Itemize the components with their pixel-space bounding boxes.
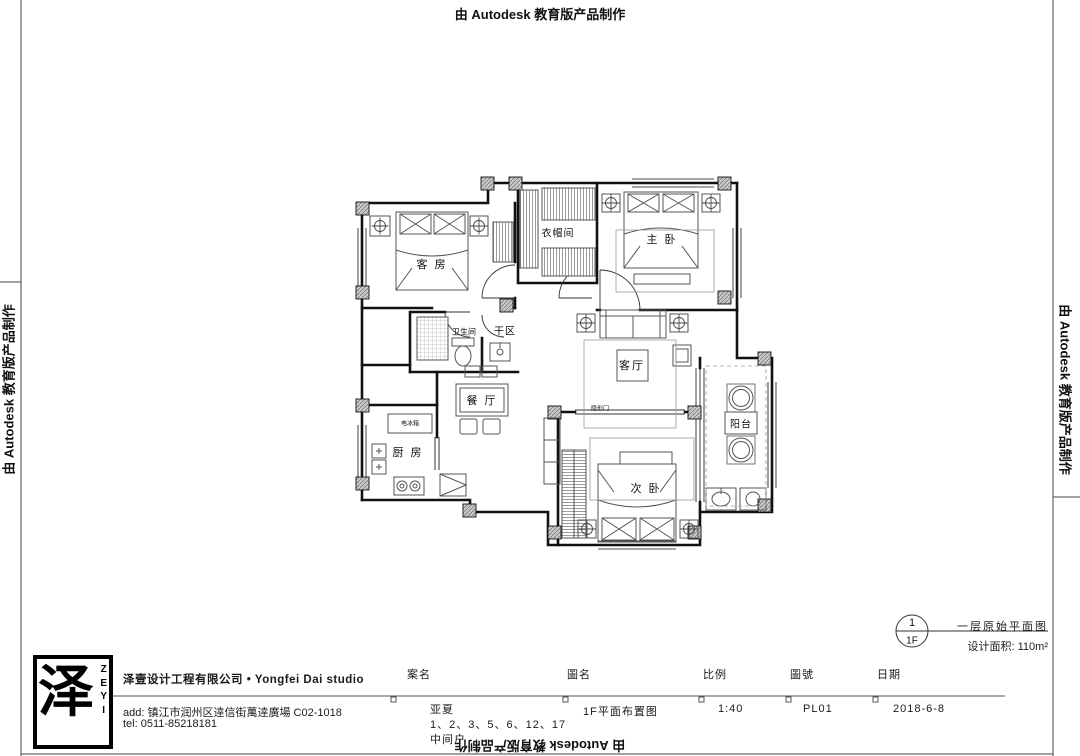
value-drawing: 1F平面布置图 xyxy=(583,703,658,719)
zeyi-logo-glyph: 泽 xyxy=(38,665,94,721)
label-fridge: 电冰箱 xyxy=(401,419,419,428)
zeyi-logo: 泽 Z E Y I xyxy=(33,655,113,749)
room-label-living: 客厅 xyxy=(619,357,645,373)
header-project: 案名 xyxy=(407,666,431,682)
detail-marker-area: 设计面积: 110m² xyxy=(930,638,1048,654)
value-scale: 1:40 xyxy=(718,703,743,715)
drawing-sheet: 由 Autodesk 教育版产品制作 由 Autodesk 教育版产品制作 由 … xyxy=(0,0,1080,756)
room-label-balcony: 阳台 xyxy=(730,416,752,431)
room-label-guest: 客 房 xyxy=(416,256,447,272)
label-hidden-door: 隐形门 xyxy=(591,404,609,413)
value-date: 2018-6-8 xyxy=(893,703,945,715)
autodesk-watermark-left: 由 Autodesk 教育版产品制作 xyxy=(0,240,18,540)
value-project-line3: 中间户 xyxy=(430,731,466,747)
company-tel: tel: 0511-85218181 xyxy=(123,718,217,730)
room-label-cloak: 衣帽间 xyxy=(542,225,575,240)
room-label-bath: 卫生间 xyxy=(452,327,476,338)
zeyi-logo-latin: Z E Y I xyxy=(100,663,107,717)
value-number: PL01 xyxy=(803,703,833,715)
room-label-dining: 餐 厅 xyxy=(466,392,497,408)
company-name: 泽壹设计工程有限公司 • Yongfei Dai studio xyxy=(123,671,364,687)
detail-marker-number: 1 xyxy=(909,617,915,629)
header-date: 日期 xyxy=(877,666,901,682)
value-project-line2: 1、2、3、5、6、12、17 xyxy=(430,716,566,732)
room-label-dry: 干区 xyxy=(494,323,516,338)
room-label-second: 次 卧 xyxy=(630,480,661,496)
autodesk-watermark-top: 由 Autodesk 教育版产品制作 xyxy=(0,4,1080,23)
autodesk-watermark-right: 由 Autodesk 教育版产品制作 xyxy=(1057,240,1076,540)
header-number: 圖號 xyxy=(790,666,814,682)
room-label-kitchen: 厨 房 xyxy=(392,444,423,460)
floor-plan-linework xyxy=(0,0,1080,756)
header-drawing: 圖名 xyxy=(567,666,591,682)
detail-marker-name: 一层原始平面图 xyxy=(930,618,1048,634)
header-scale: 比例 xyxy=(703,666,727,682)
room-label-master: 主 卧 xyxy=(646,231,677,247)
detail-marker-floor: 1F xyxy=(906,636,918,647)
value-project-line1: 亚夏 xyxy=(430,701,454,717)
